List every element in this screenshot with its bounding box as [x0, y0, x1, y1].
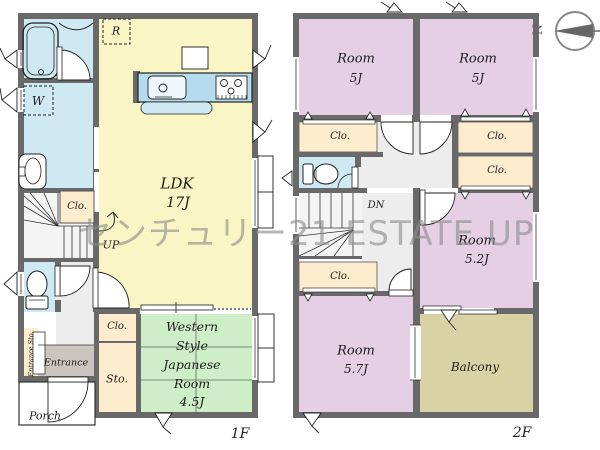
compass-north-label: N [531, 24, 546, 35]
closet-entrance-label: Clo. [107, 322, 127, 332]
window-shutter-boxes [258, 156, 274, 382]
floorplan-canvas: R W LDK 17J Clo. UP Clo. Sto. Entrance E… [0, 0, 600, 450]
japanese-room-line2: Style [176, 340, 208, 353]
room-ldk [99, 19, 252, 308]
toilet-fixture-1f [26, 271, 48, 309]
room-sw-size-label: 5.7J [344, 363, 368, 375]
compass-icon [554, 12, 600, 50]
japanese-room-size: 4.5J [180, 396, 205, 409]
storage-label: Sto. [106, 374, 128, 385]
floor2-label: 2F [513, 426, 532, 440]
porch-label: Porch [29, 411, 61, 422]
stove-fixture [216, 76, 247, 99]
closet-2f-west-label: Clo. [330, 132, 350, 142]
japanese-room-line3: Japanese [163, 359, 220, 372]
room-sw-name-label: Room [337, 345, 375, 358]
japanese-room-line4: Room [174, 378, 210, 391]
floor1-label: 1F [231, 427, 250, 441]
closet-2f-south-label: Clo. [330, 272, 350, 282]
room-ne-size-label: 5J [472, 72, 484, 84]
washer-label: W [32, 95, 44, 107]
room-ne-name-label: Room [459, 53, 497, 66]
closet-2f-east-upper-label: Clo. [487, 132, 507, 142]
sink-fixture [148, 76, 186, 99]
balcony-label: Balcony [451, 361, 499, 373]
toilet-fixture-2f [303, 164, 338, 184]
japanese-room-line1: Western [166, 321, 218, 334]
watermark-text: センチュリー21 ESTATE UP [78, 206, 534, 255]
refrigerator-label: R [112, 26, 120, 37]
entrance-label: Entrance [44, 358, 88, 368]
counter-table [182, 47, 208, 69]
room-nw-size-label: 5J [350, 72, 362, 84]
closet-2f-east-lower-label: Clo. [487, 166, 507, 176]
room-nw-name-label: Room [337, 53, 375, 66]
room-nw [299, 19, 413, 115]
ldk-name-label: LDK [160, 177, 193, 192]
toilet-2f-door-leaf [352, 167, 358, 188]
entrance-storage-label: Entrance Sto. [28, 331, 35, 376]
washbasin-fixture [19, 154, 46, 189]
room-ne [420, 19, 533, 115]
